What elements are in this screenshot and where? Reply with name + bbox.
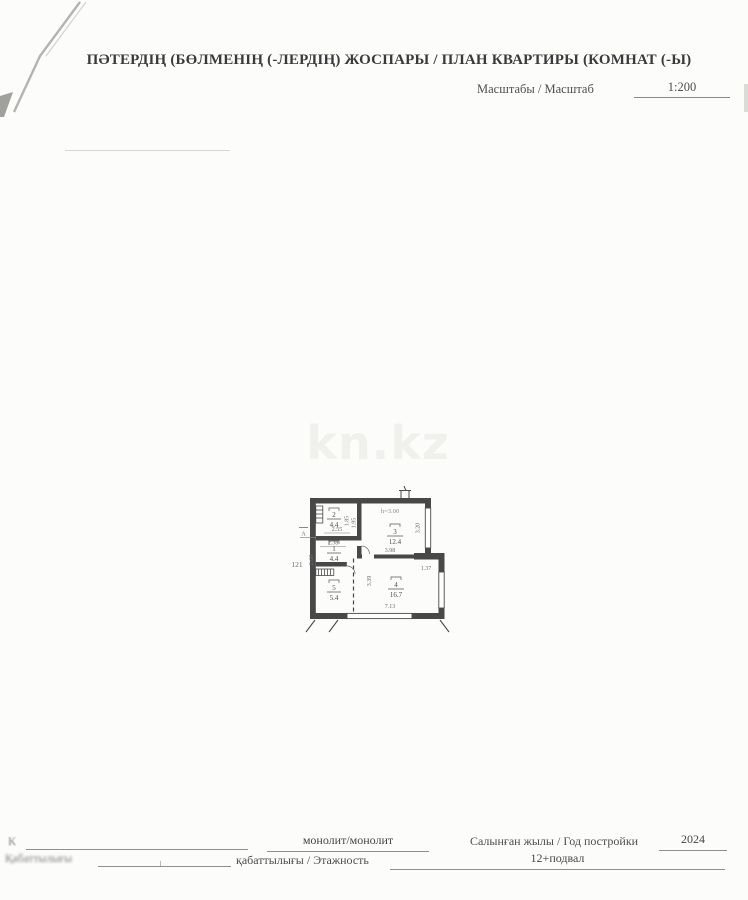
- wall-material-label-faded: К: [8, 834, 16, 849]
- svg-text:16.7: 16.7: [390, 591, 403, 599]
- svg-text:2: 2: [332, 511, 336, 519]
- svg-text:1.37: 1.37: [421, 566, 432, 572]
- floor-plan: А 2 4.4 3 12.4 1 4.4 5 5.4 4 16.7 2.55: [280, 478, 480, 648]
- floors-value: 12+подвал: [390, 851, 725, 870]
- svg-text:А: А: [301, 532, 306, 538]
- floors-label: қабаттылығы / Этажность: [236, 853, 369, 868]
- floors-left-line: [98, 866, 231, 867]
- svg-text:1.95: 1.95: [352, 518, 358, 529]
- svg-text:3.98: 3.98: [385, 548, 396, 554]
- svg-text:2.55: 2.55: [332, 527, 343, 533]
- closet-shaft-hatch: [316, 569, 334, 576]
- svg-text:2.38: 2.38: [328, 541, 339, 547]
- svg-text:12.4: 12.4: [389, 538, 402, 546]
- scanned-floor-plan-page: { "page": { "title": "ПӘТЕРДІҢ (БӨЛМЕНІҢ…: [0, 0, 748, 900]
- vent-pipe-symbol: [399, 486, 411, 498]
- wall-material-label-line: [26, 849, 248, 850]
- unit-number: 121: [291, 560, 303, 569]
- svg-text:4: 4: [394, 581, 398, 589]
- room-label-2: 2 4.4: [327, 508, 341, 529]
- year-built-label: Салынған жылы / Год постройки: [470, 834, 638, 849]
- plan-windows: [347, 508, 444, 619]
- svg-text:5: 5: [332, 584, 336, 592]
- svg-text:1.85: 1.85: [345, 516, 351, 527]
- page-title: ПӘТЕРДІҢ (БӨЛМЕНІҢ (-ЛЕРДІҢ) ЖОСПАРЫ / П…: [55, 52, 723, 69]
- scale-value: 1:200: [634, 80, 730, 98]
- svg-text:7.13: 7.13: [385, 604, 396, 610]
- vent-shaft-hatch: [316, 506, 323, 523]
- svg-text:3: 3: [393, 528, 397, 536]
- svg-text:3.39: 3.39: [367, 576, 373, 587]
- room-label-4: 4 16.7: [388, 577, 404, 599]
- ground-tick-marks: [306, 620, 449, 632]
- svg-text:h=3.00: h=3.00: [381, 508, 399, 515]
- room-label-5: 5 5.4: [327, 580, 341, 602]
- year-built-value: 2024: [659, 832, 727, 851]
- faded-table-line: [65, 150, 230, 151]
- watermark: kn.kz: [283, 416, 473, 470]
- scale-label: Масштабы / Масштаб: [477, 82, 594, 97]
- wall-material-value: монолит/монолит: [267, 833, 429, 852]
- svg-text:3.20: 3.20: [416, 523, 422, 534]
- plan-dimensions: 2.55 2.38 1.85 1.95 3.20 2.60 3.98 1.37 …: [309, 508, 431, 610]
- floors-label-faded: Қабаттылығы: [5, 853, 72, 865]
- svg-text:4.4: 4.4: [330, 555, 339, 563]
- floors-left-line-tick: [160, 861, 161, 866]
- svg-text:5.4: 5.4: [330, 594, 339, 602]
- svg-text:2.60: 2.60: [309, 555, 315, 566]
- scan-edge-artifact: [744, 84, 748, 112]
- room-label-3: 3 12.4: [387, 524, 403, 546]
